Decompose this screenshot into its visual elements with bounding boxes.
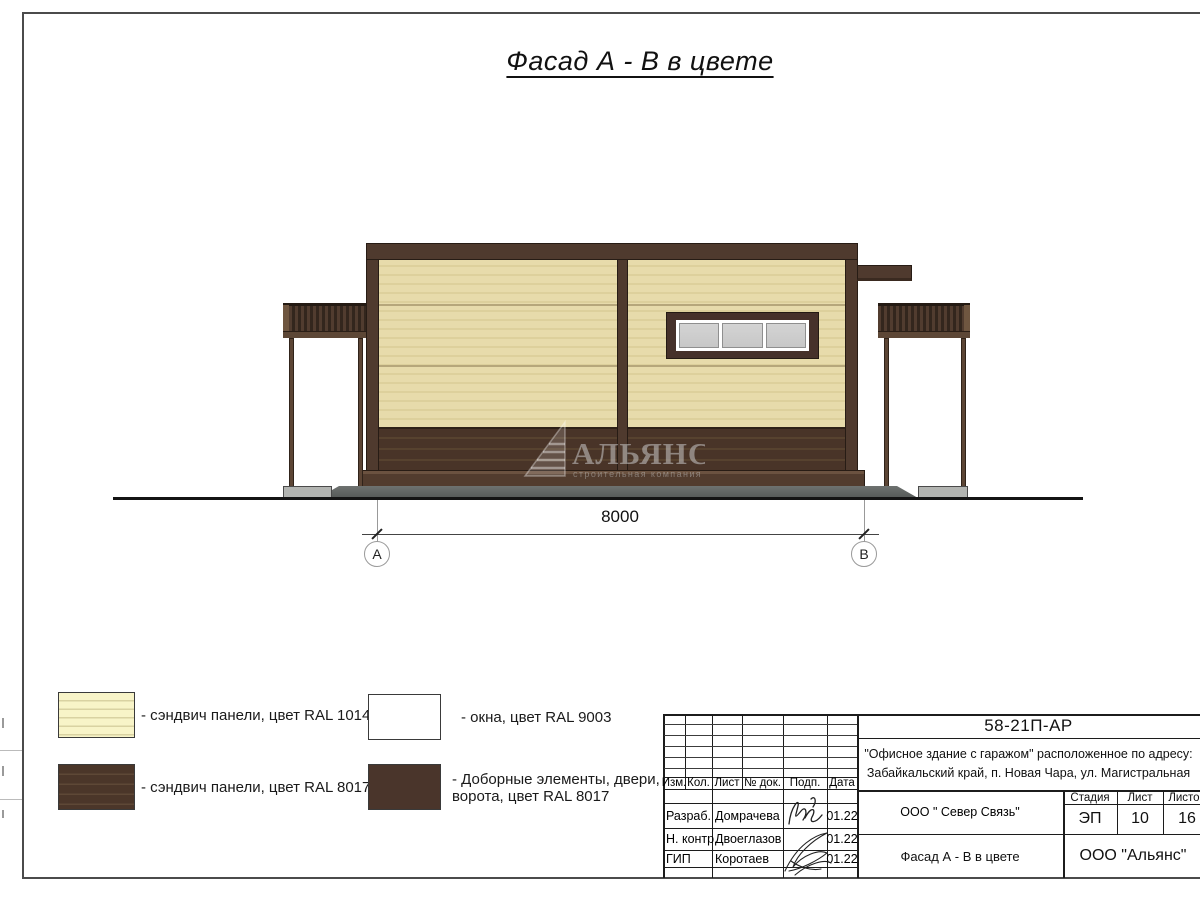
sheet-label: Лист [1117, 791, 1163, 804]
drawing-sheet: Фасад А - В в цвете АЛЬЯНС строительная … [0, 0, 1200, 900]
tb-role: ГИП [666, 850, 712, 867]
tb-col-podp: Подп. [783, 777, 827, 789]
margin-mark [2, 810, 4, 818]
legend-label: - сэндвич панели, цвет RAL 1014 [141, 700, 381, 730]
tb-name: Коротаев [715, 850, 781, 867]
watermark-subtitle: строительная компания [573, 469, 702, 479]
axis-marker-a: А [364, 541, 390, 567]
contractor-name: ООО " Север Связь" [857, 790, 1063, 834]
sheet-number: 10 [1117, 804, 1163, 834]
panel-joint-line [372, 365, 852, 367]
margin-divider [0, 799, 22, 800]
company-name: ООО "Альянс" [1063, 834, 1200, 878]
stage-value: ЭП [1063, 804, 1117, 834]
project-line2: Забайкальский край, п. Новая Чара, ул. М… [867, 764, 1190, 783]
margin-mark [2, 718, 4, 728]
tb-col-list: Лист [712, 777, 742, 789]
tb-col-izm: Изм. [663, 777, 685, 789]
corner-pillar-left [366, 257, 379, 471]
panel-joint-line [372, 304, 852, 306]
watermark-title: АЛЬЯНС [572, 436, 705, 471]
canopy-left-cap [283, 305, 289, 331]
axis-marker-b: В [851, 541, 877, 567]
legend-swatch-ral9003 [368, 694, 441, 740]
sheets-total: 16 [1163, 804, 1200, 834]
window-pane [722, 323, 762, 348]
canopy-post [961, 338, 966, 487]
canopy-right [878, 303, 970, 331]
legend-swatch-ral1014 [58, 692, 135, 738]
project-line1: "Офисное здание с гаражом" расположенное… [864, 745, 1192, 764]
legend-swatch-ral8017-elements [368, 764, 441, 810]
canopy-right-cap [964, 305, 970, 331]
tb-name: Домрачева [715, 803, 781, 828]
tb-date: 01.22 [827, 803, 857, 828]
signature [781, 827, 833, 877]
tb-name: Двоеглазов [715, 828, 781, 850]
frame-left-border [22, 12, 24, 879]
project-description: "Офисное здание с гаражом" расположенное… [857, 738, 1200, 790]
canopy-left-rail [283, 331, 366, 338]
legend-label: - окна, цвет RAL 9003 [461, 702, 681, 732]
canopy-right-rail [878, 331, 970, 338]
legend-label: - сэндвич панели, цвет RAL 8017 [141, 772, 381, 802]
axis-letter: А [372, 546, 381, 562]
tb-col-ndok: № док. [742, 777, 783, 789]
legend-swatch-ral8017-panels [58, 764, 135, 810]
tb-role: Разраб. [666, 803, 711, 828]
tb-role: Н. контр. [666, 828, 712, 850]
tb-revision-rows [664, 714, 857, 776]
ground-line [113, 497, 1083, 500]
page-title: Фасад А - В в цвете [380, 44, 900, 78]
sheet-title: Фасад А - В в цвете [857, 834, 1063, 878]
doc-number: 58-21П-АР [857, 714, 1200, 738]
roof-parapet [366, 243, 858, 260]
canopy-post [884, 338, 889, 487]
dimension-line [362, 534, 879, 535]
frame-top-border [22, 12, 1200, 14]
watermark-logo: АЛЬЯНС строительная компания [515, 418, 705, 480]
margin-divider [0, 750, 22, 751]
tb-col-kol: Кол. [685, 777, 712, 789]
corner-pillar-right [845, 257, 858, 471]
margin-mark [2, 766, 4, 776]
tb-col-data: Дата [827, 777, 857, 789]
sheets-total-label: Листов [1163, 791, 1200, 804]
dimension-value: 8000 [570, 506, 670, 528]
window-pane [679, 323, 719, 348]
canopy-left [283, 303, 366, 331]
roof-beam-right [857, 265, 912, 281]
axis-letter: В [859, 546, 868, 562]
window-pane [766, 323, 806, 348]
tb-line [663, 789, 857, 790]
ribbon-window [676, 320, 809, 351]
canopy-post [358, 338, 363, 487]
canopy-post [289, 338, 294, 487]
stage-label: Стадия [1063, 791, 1117, 804]
